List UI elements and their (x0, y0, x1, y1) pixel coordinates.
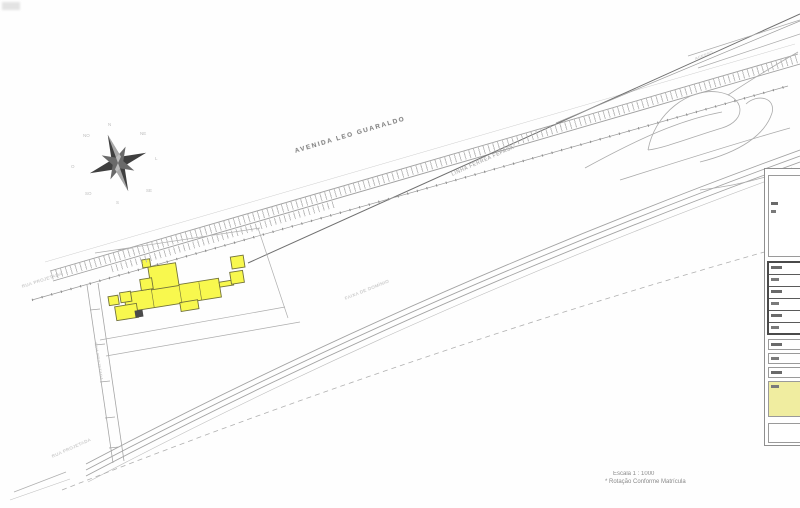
boundary-dashed-line (10, 242, 800, 500)
compass-label-s: S (116, 200, 119, 205)
title-block-header-box (768, 175, 800, 257)
table-row (769, 263, 800, 275)
title-block-highlight-box (768, 381, 800, 417)
site-plan-sheet: AVENIDA LEO GUARALDO LINHA FÉRREA FEPASA… (0, 0, 800, 508)
title-block-row-3 (768, 367, 800, 378)
table-row (769, 275, 800, 287)
compass-label-nw: NO (83, 133, 90, 138)
deed-note: * Rotação Conforme Matrícula (605, 478, 686, 486)
table-row (769, 323, 800, 334)
table-row (769, 311, 800, 323)
compass-label-se: SE (146, 188, 152, 193)
title-block-table (767, 261, 800, 335)
title-block-row-2 (768, 353, 800, 364)
notes-block: Escala 1 : 1000 * Rotação Conforme Matrí… (605, 470, 686, 486)
compass-rose (80, 125, 157, 202)
highway-lines (86, 150, 800, 482)
table-row (769, 287, 800, 299)
compass-label-sw: SO (85, 191, 92, 196)
table-row (769, 299, 800, 311)
building-dark-annex (135, 310, 144, 318)
compass-label-w: O (71, 164, 75, 169)
compass-label-ne: NE (140, 131, 146, 136)
compass-label-e: L (155, 156, 158, 161)
title-block-panel (764, 168, 800, 446)
compass-label-n: N (108, 122, 111, 127)
scale-note: Escala 1 : 1000 (605, 470, 686, 478)
title-block-footer-box (768, 423, 800, 443)
title-block-row-1 (768, 339, 800, 350)
